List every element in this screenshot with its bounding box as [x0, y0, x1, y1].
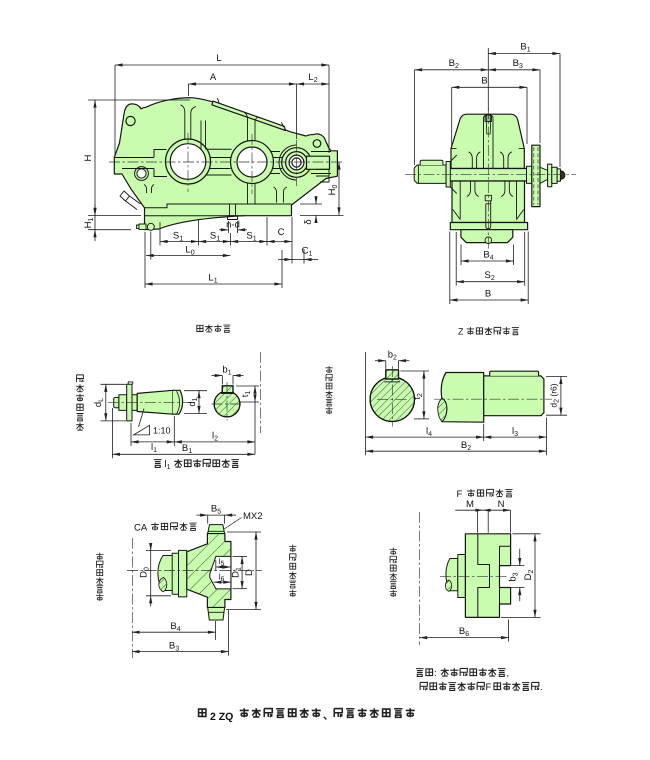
svg-text:.: .	[540, 682, 543, 693]
svg-text:A: A	[210, 72, 217, 83]
svg-text:MX2: MX2	[243, 511, 263, 522]
svg-text:M: M	[466, 499, 474, 510]
svg-text:D: D	[244, 569, 255, 576]
svg-text:L: L	[216, 53, 221, 64]
svg-text:、: 、	[323, 710, 334, 722]
svg-text:F: F	[486, 682, 492, 693]
svg-text:H: H	[83, 154, 94, 161]
svg-text:2 ZQ: 2 ZQ	[210, 711, 233, 723]
svg-text:N: N	[498, 499, 505, 510]
svg-text:CA: CA	[134, 523, 148, 534]
svg-text:Z: Z	[458, 327, 464, 337]
svg-text::: :	[434, 668, 437, 679]
svg-text:n-d: n-d	[226, 220, 240, 231]
svg-text:1:10: 1:10	[153, 426, 171, 436]
svg-text:C: C	[278, 227, 285, 238]
svg-text:δ: δ	[303, 219, 314, 224]
svg-text:B: B	[481, 76, 487, 87]
svg-text:B: B	[485, 289, 491, 300]
svg-text:,: ,	[507, 668, 510, 679]
svg-text:F: F	[457, 489, 463, 500]
